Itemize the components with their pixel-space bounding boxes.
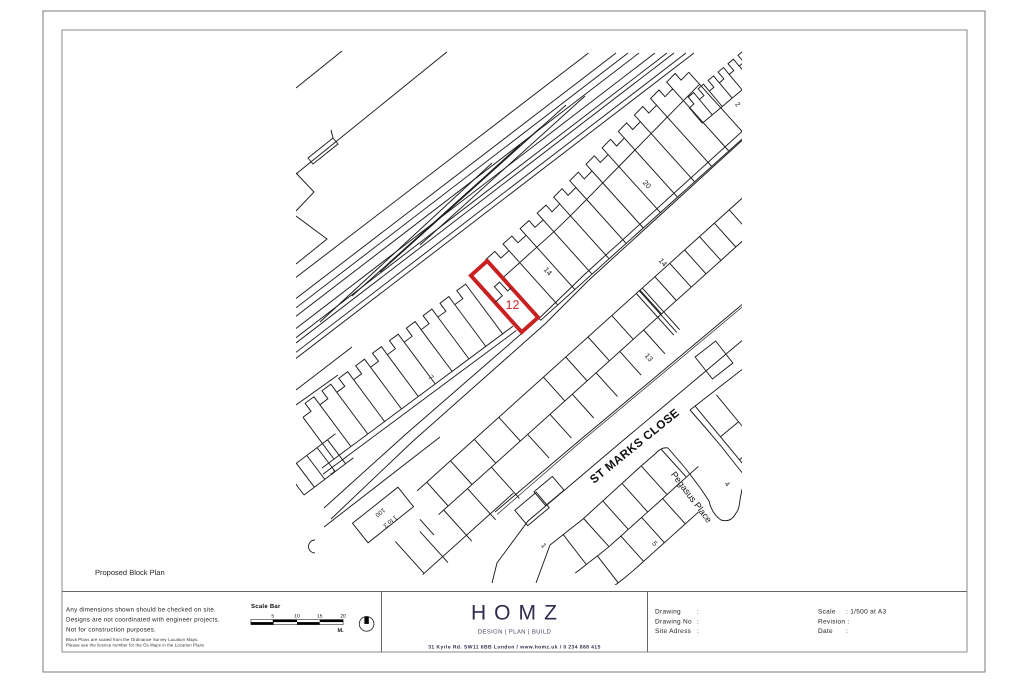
svg-text:Any dimensions shown should be: Any dimensions shown should be checked o… — [66, 607, 216, 614]
svg-text:H O M Z: H O M Z — [471, 602, 558, 625]
svg-text:Proposed Block Plan: Proposed Block Plan — [95, 568, 165, 577]
svg-text:Designs are not coordinated wi: Designs are not coordinated with enginee… — [66, 617, 220, 624]
svg-text::: : — [697, 628, 699, 635]
svg-text:Block Plans are scaled from th: Block Plans are scaled from the Ordinanc… — [66, 637, 199, 642]
svg-text:15: 15 — [317, 614, 323, 620]
svg-text:DESIGN | PLAN | BUILD: DESIGN | PLAN | BUILD — [478, 629, 552, 636]
svg-text:20: 20 — [340, 614, 346, 620]
svg-text::: : — [697, 609, 699, 616]
svg-text:Not for construction purposes.: Not for construction purposes. — [66, 627, 156, 634]
svg-text:M.: M. — [338, 628, 345, 634]
svg-text:Drawing No: Drawing No — [655, 619, 692, 626]
svg-text:Scale: Scale — [818, 609, 836, 616]
svg-text:10: 10 — [294, 614, 300, 620]
svg-text::: : — [697, 619, 699, 626]
svg-text:12: 12 — [506, 298, 520, 312]
svg-text:Drawing: Drawing — [655, 609, 681, 616]
svg-text:5: 5 — [271, 614, 274, 620]
svg-text:Scale Bar: Scale Bar — [251, 603, 281, 610]
svg-text:Date: Date — [818, 628, 833, 635]
svg-text::: : — [846, 628, 848, 635]
svg-text:: 1/500 at A3: : 1/500 at A3 — [846, 609, 886, 616]
svg-text:Revision :: Revision : — [818, 619, 850, 626]
svg-text:Please see the licence number: Please see the licence number for the Os… — [66, 643, 204, 648]
svg-text:31 Kyrle Rd. SW11 6BB London /: 31 Kyrle Rd. SW11 6BB London / www.homz.… — [428, 645, 601, 651]
svg-text:Site Adress: Site Adress — [655, 628, 692, 635]
